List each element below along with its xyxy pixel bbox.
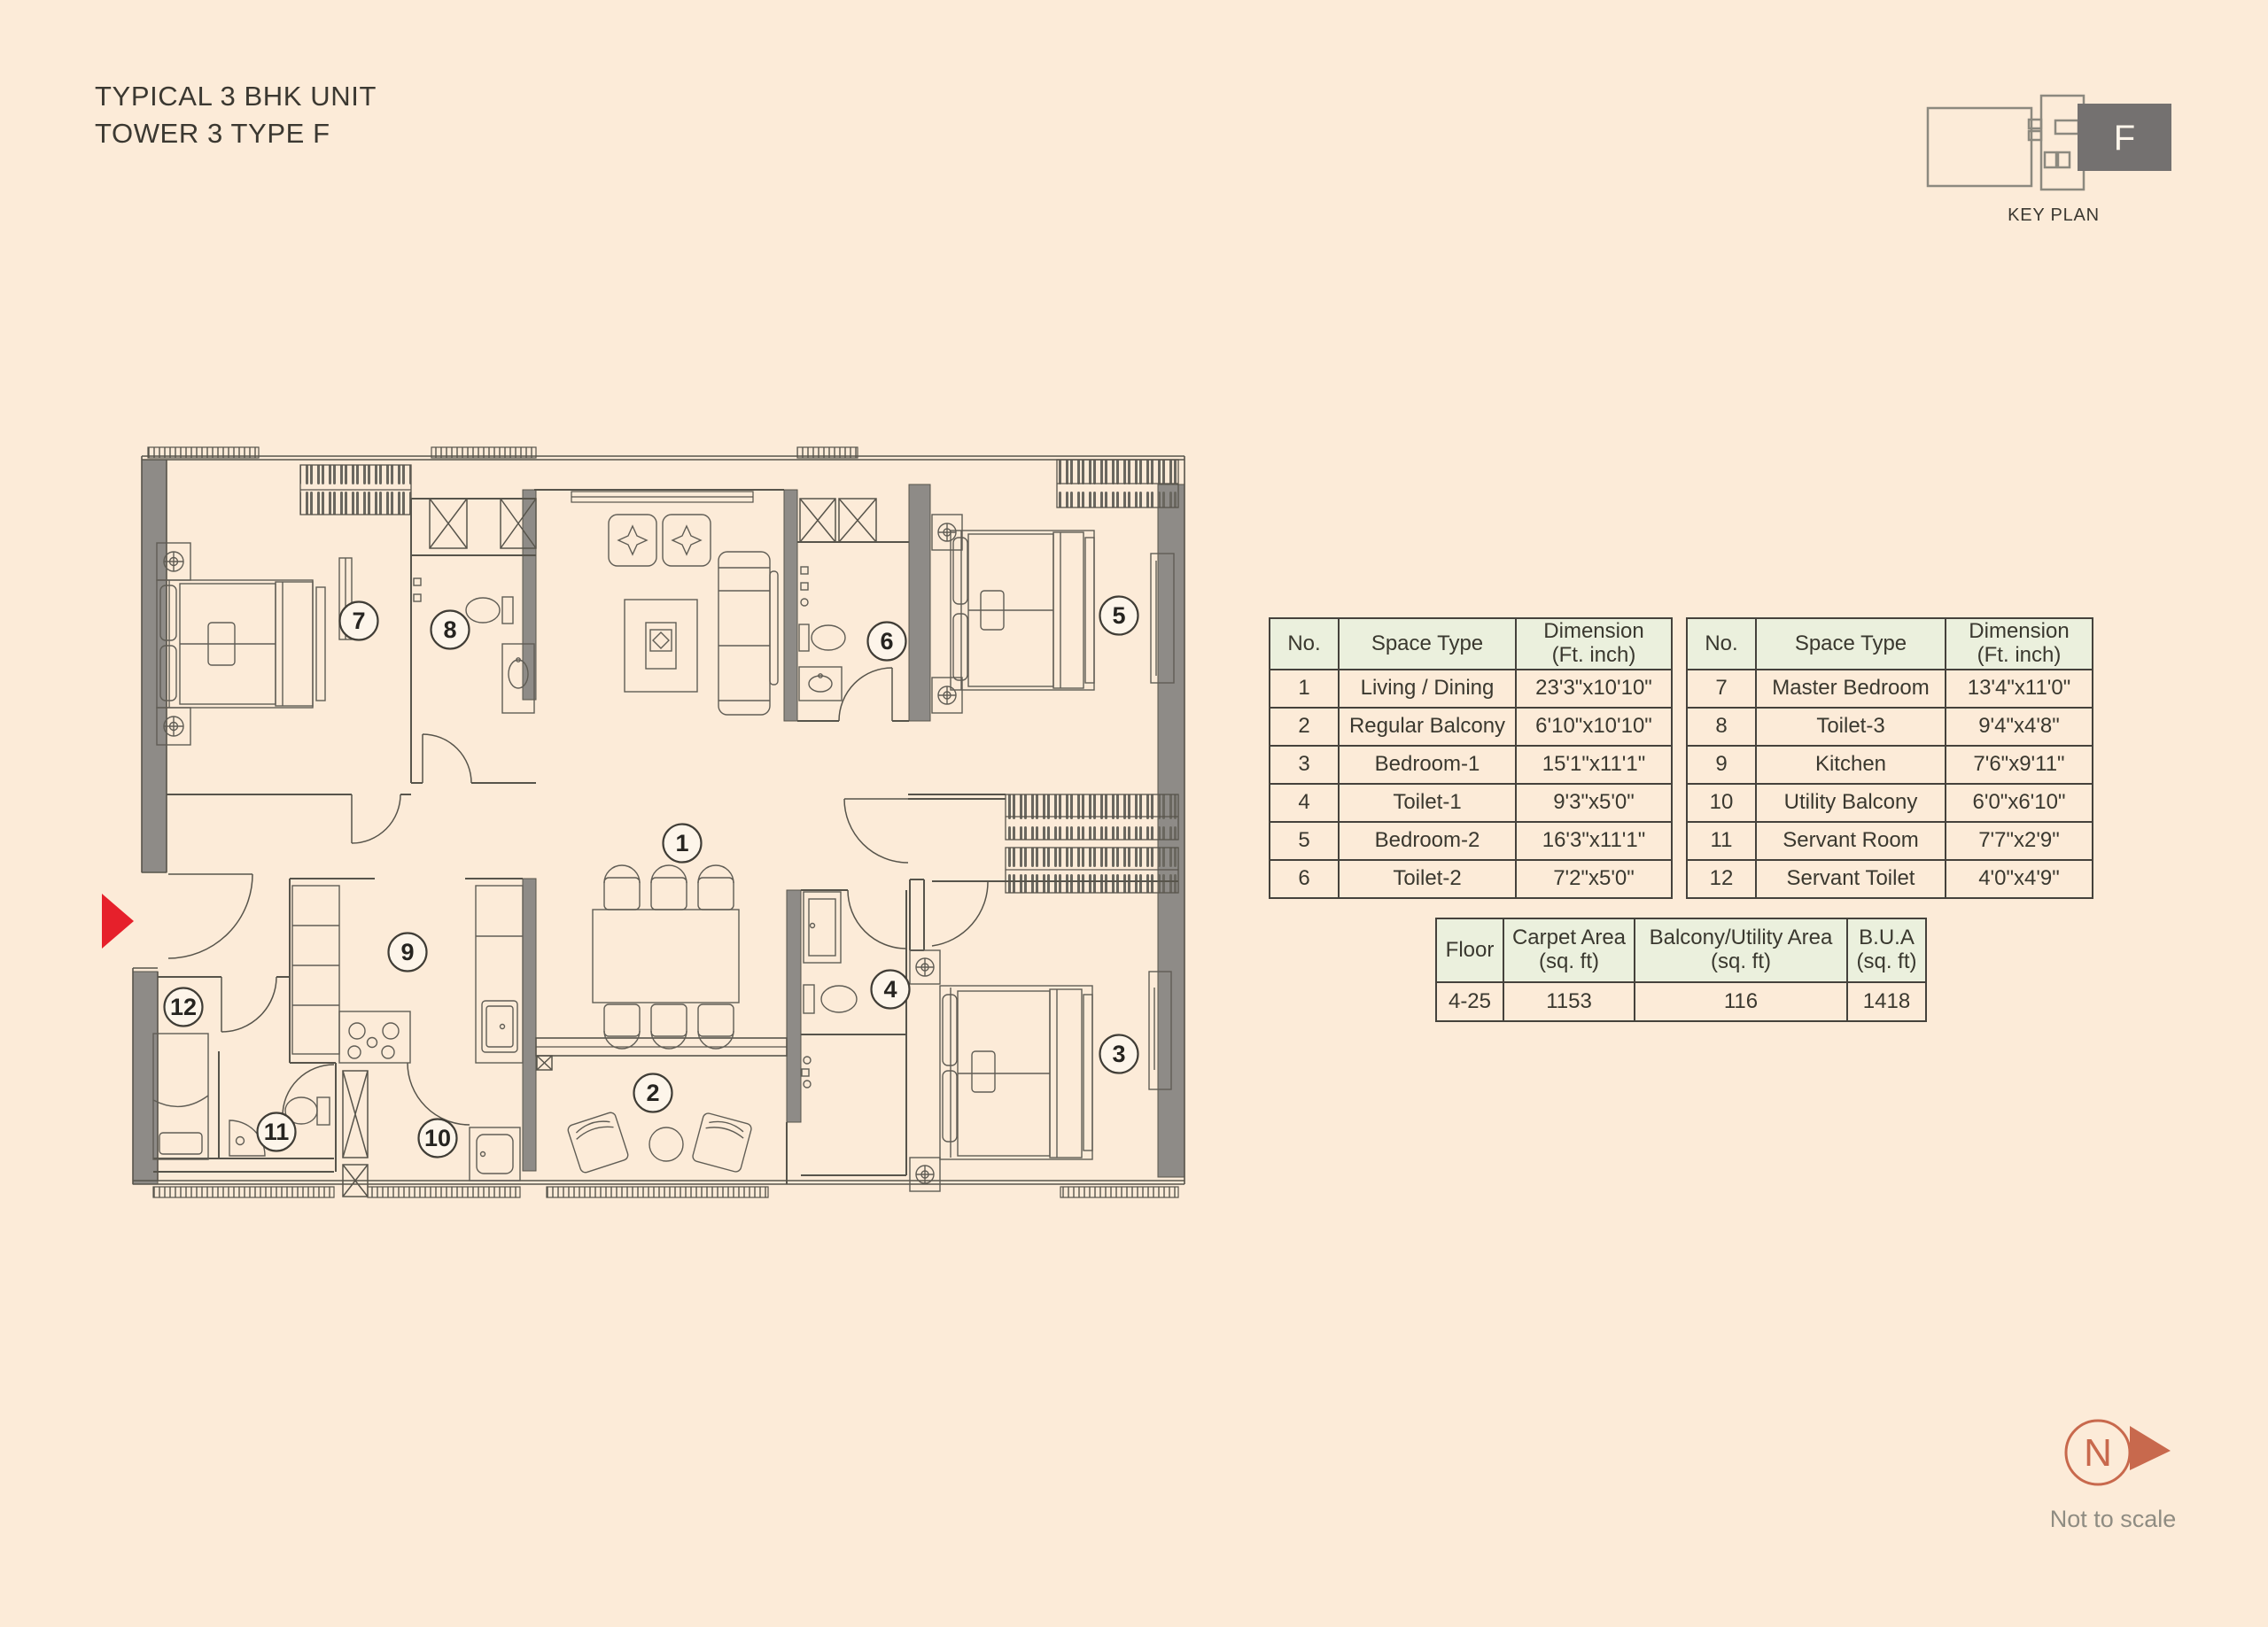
table-row: 3Bedroom-115'1"x11'1" [1270, 746, 1672, 784]
marker-bedroom1: 3 [1100, 1035, 1138, 1073]
svg-text:2: 2 [646, 1080, 659, 1106]
keyplan-tower-outline [1928, 108, 2031, 186]
marker-utility-balcony: 10 [419, 1120, 457, 1158]
keyplan-unit-label: F [2114, 119, 2135, 158]
col-balcony-area: Balcony/Utility Area(sq. ft) [1635, 918, 1847, 982]
table-row: 6Toilet-27'2"x5'0" [1270, 860, 1672, 898]
keyplan-core-outline [2041, 96, 2084, 190]
marker-servant-toilet: 12 [165, 988, 203, 1027]
wardrobes [300, 460, 1178, 893]
marker-bedroom2: 5 [1100, 597, 1138, 635]
col-bua: B.U.A(sq. ft) [1847, 918, 1926, 982]
bed-bedroom1 [910, 950, 1092, 1191]
svg-text:4: 4 [883, 976, 897, 1003]
bed-master [157, 543, 325, 745]
col-carpet-area: Carpet Area(sq. ft) [1503, 918, 1635, 982]
svg-text:12: 12 [170, 994, 197, 1020]
svg-text:7: 7 [352, 608, 365, 634]
table-row: 4-25 1153 116 1418 [1436, 982, 1926, 1021]
svg-text:8: 8 [443, 616, 456, 643]
svg-text:6: 6 [880, 628, 893, 655]
kitchen-counters [292, 886, 523, 1063]
col-dimension: Dimension(Ft. inch) [1516, 618, 1672, 670]
col-no: No. [1270, 618, 1339, 670]
washing-machine [470, 1127, 520, 1181]
table-row: 1Living / Dining23'3"x10'10" [1270, 670, 1672, 708]
balcony-furniture [567, 1112, 753, 1174]
svg-text:5: 5 [1112, 602, 1125, 629]
entry-arrow [102, 894, 134, 949]
table-row: 4Toilet-19'3"x5'0" [1270, 784, 1672, 822]
area-table: Floor Carpet Area(sq. ft) Balcony/Utilit… [1435, 918, 1927, 1022]
not-to-scale-note: Not to scale [2029, 1506, 2197, 1533]
toilet3-fixtures [414, 578, 534, 713]
living-furniture [609, 515, 778, 715]
svg-text:11: 11 [264, 1119, 290, 1145]
keyplan-caption: KEY PLAN [1983, 205, 2124, 226]
marker-kitchen: 9 [389, 934, 427, 972]
table-row: 2Regular Balcony6'10"x10'10" [1270, 708, 1672, 746]
svg-text:3: 3 [1112, 1041, 1125, 1067]
svg-text:10: 10 [424, 1125, 451, 1151]
col-floor: Floor [1436, 918, 1503, 982]
table-row: 7Master Bedroom13'4"x11'0" [1687, 670, 2093, 708]
toilet2-fixtures [799, 567, 845, 701]
marker-toilet1: 4 [872, 971, 910, 1009]
svg-text:1: 1 [675, 830, 688, 856]
table-row: 12Servant Toilet4'0"x4'9" [1687, 860, 2093, 898]
bed-bedroom2 [932, 515, 1094, 713]
space-table-1: No. Space Type Dimension(Ft. inch) 1Livi… [1269, 617, 1673, 899]
marker-master-bedroom: 7 [340, 602, 378, 640]
col-dimension: Dimension(Ft. inch) [1946, 618, 2093, 670]
marker-living-dining: 1 [664, 825, 702, 863]
page-title: TYPICAL 3 BHK UNIT TOWER 3 TYPE F [95, 78, 377, 152]
marker-regular-balcony: 2 [634, 1074, 672, 1112]
svg-text:9: 9 [400, 939, 414, 965]
marker-servant-room: 11 [258, 1113, 296, 1151]
title-line2: TOWER 3 TYPE F [95, 115, 377, 152]
marker-toilet2: 6 [868, 623, 906, 661]
north-label: N [2084, 1431, 2112, 1475]
col-space-type: Space Type [1756, 618, 1946, 670]
table-row: 9Kitchen7'6"x9'11" [1687, 746, 2093, 784]
servant-area-fixtures [153, 1034, 330, 1159]
title-line1: TYPICAL 3 BHK UNIT [95, 78, 377, 115]
space-table-2: No. Space Type Dimension(Ft. inch) 7Mast… [1686, 617, 2093, 899]
col-no: No. [1687, 618, 1756, 670]
col-space-type: Space Type [1339, 618, 1516, 670]
dining-set [593, 865, 739, 1049]
north-indicator: N [2055, 1414, 2197, 1498]
table-row: 5Bedroom-216'3"x11'1" [1270, 822, 1672, 860]
toilet1-fixtures [802, 892, 857, 1088]
floor-plan: 1 2 3 4 5 6 7 8 9 10 11 12 [90, 440, 1211, 1220]
table-row: 8Toilet-39'4"x4'8" [1687, 708, 2093, 746]
table-row: 10Utility Balcony6'0"x6'10" [1687, 784, 2093, 822]
marker-toilet3: 8 [431, 611, 470, 649]
table-row: 11Servant Room7'7"x2'9" [1687, 822, 2093, 860]
north-arrow-icon [2130, 1426, 2171, 1470]
